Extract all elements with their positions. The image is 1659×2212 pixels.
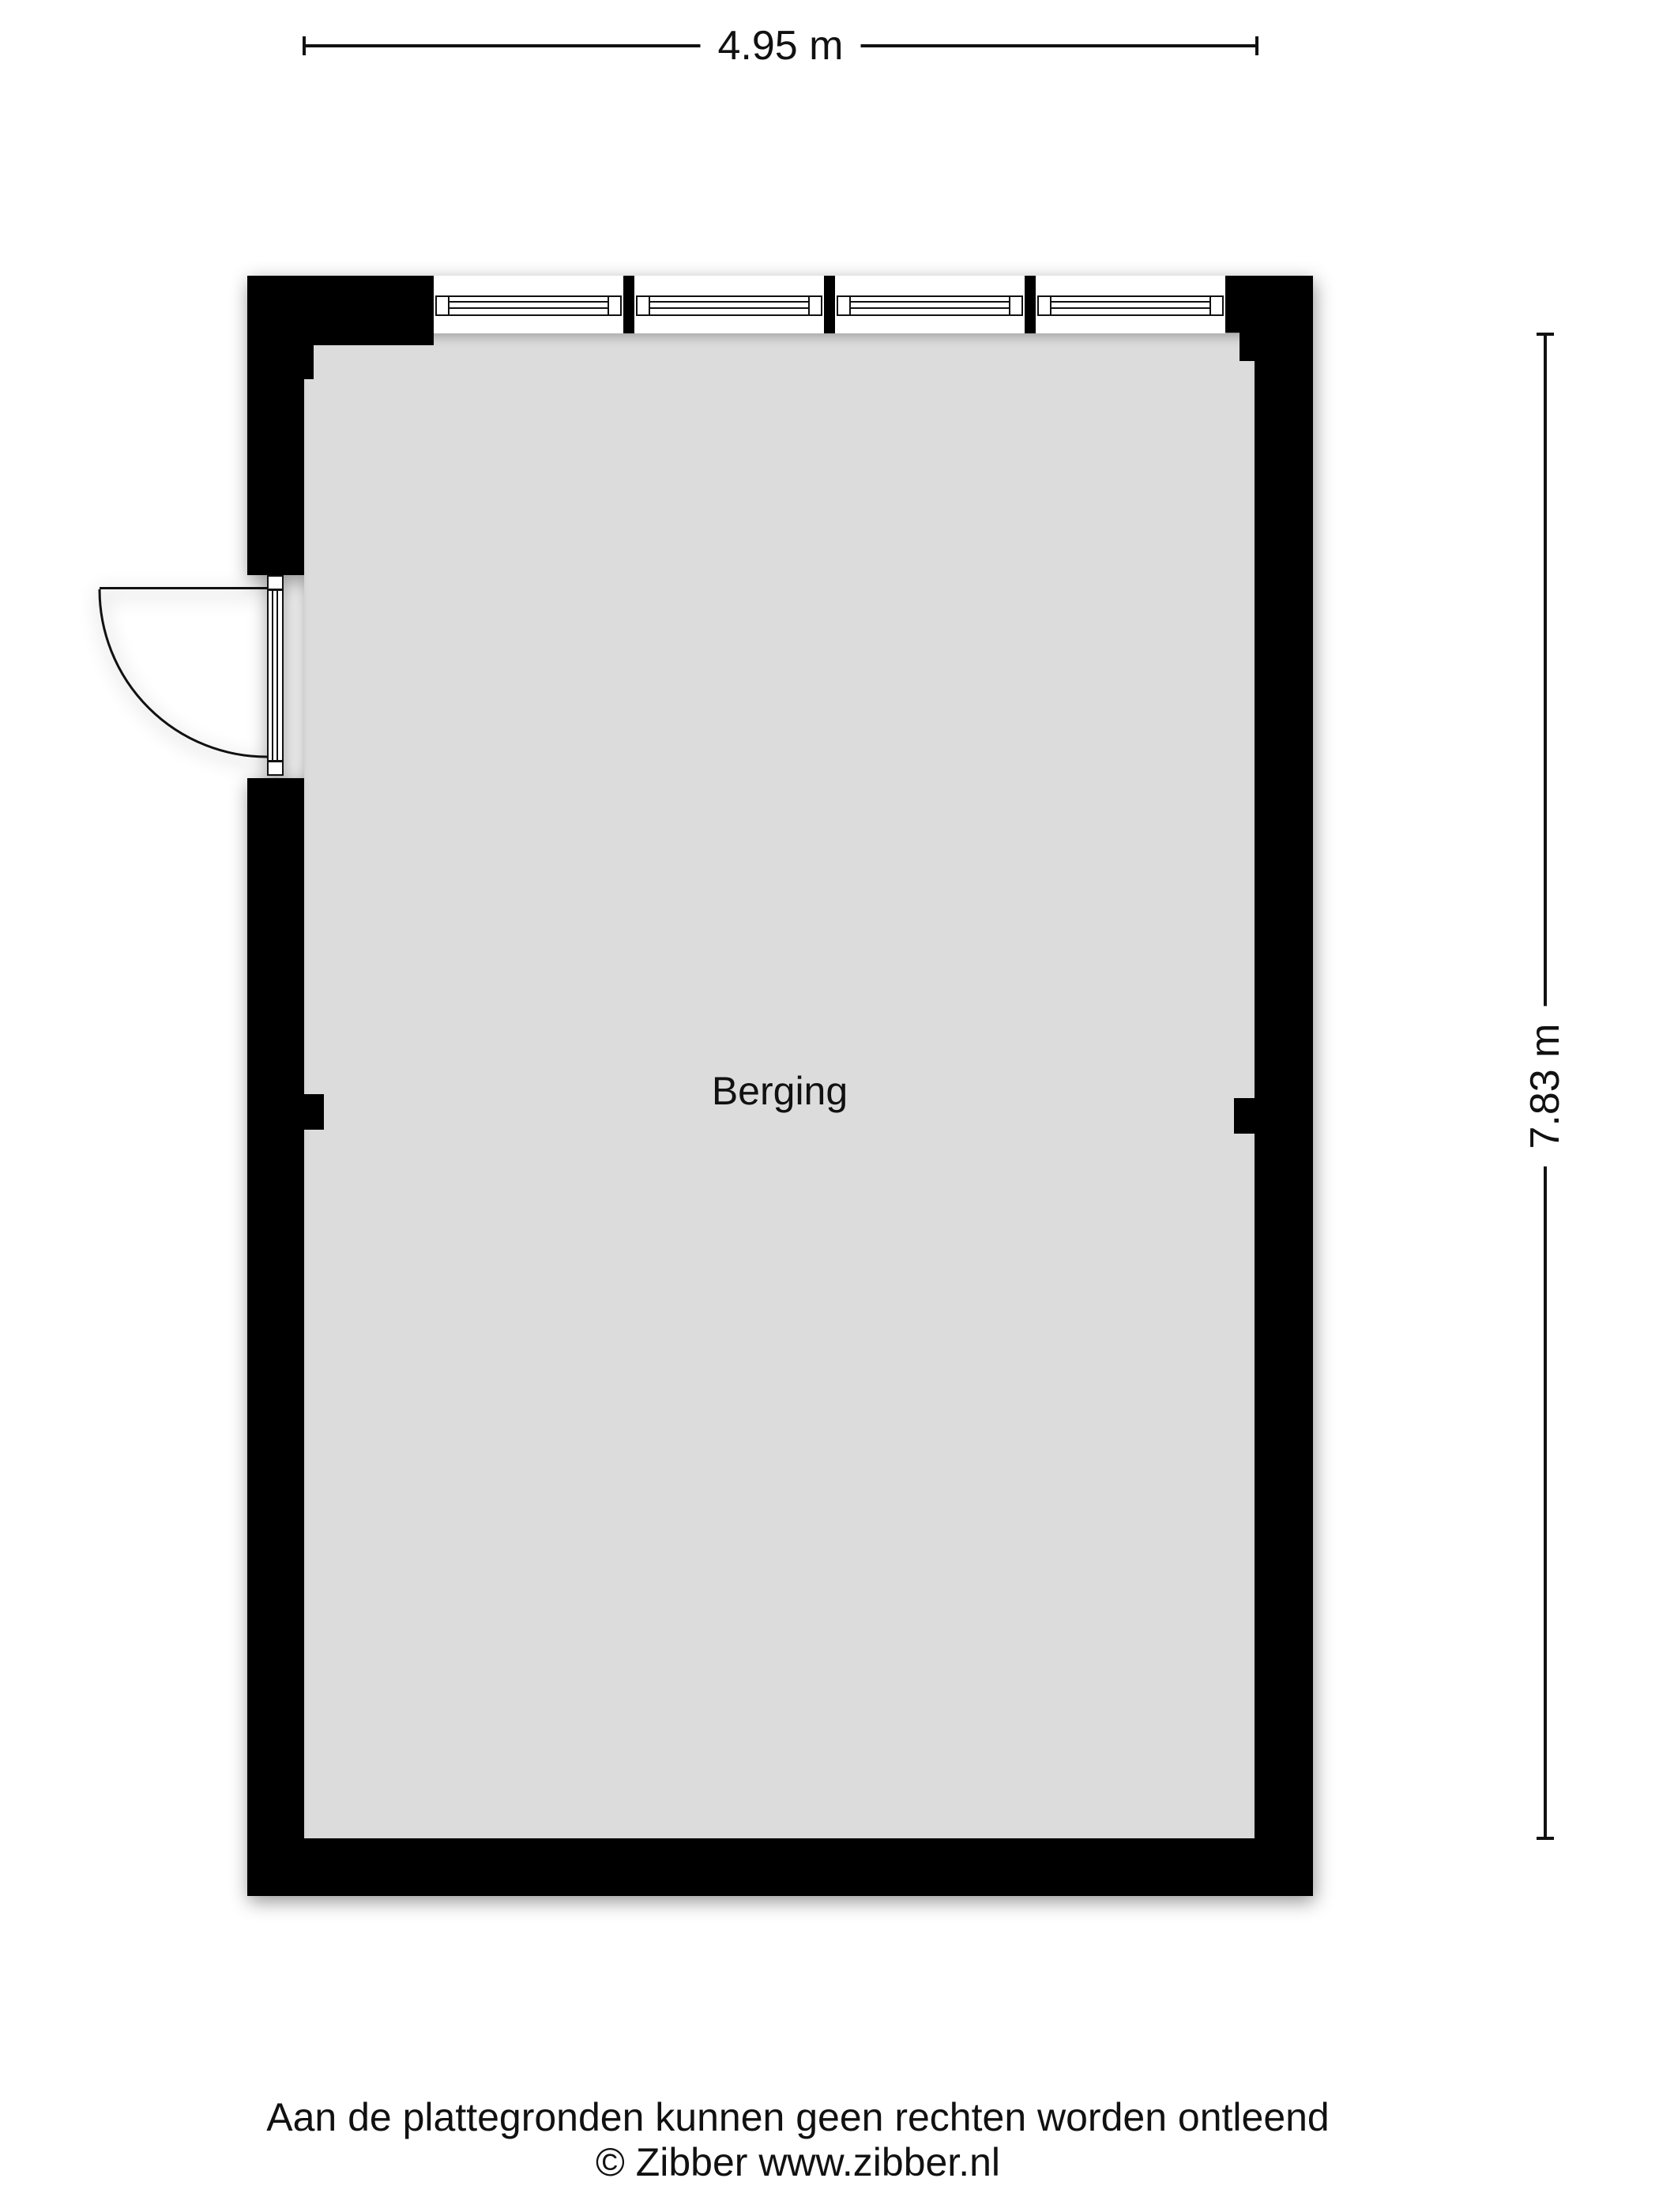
height-dimension-tick-bottom: [1537, 1837, 1554, 1840]
height-dimension-tick-top: [1537, 333, 1554, 336]
window-mullion: [623, 276, 634, 333]
room-label: Berging: [712, 1071, 848, 1111]
wall-notch-left: [304, 1094, 324, 1130]
wall-top-right-block: [1225, 276, 1313, 333]
height-dimension: 7.83 m: [1528, 333, 1563, 1840]
door-swing-arc: [100, 589, 267, 757]
wall-top-left-block: [247, 276, 434, 345]
floor-plan-page: 4.95 m: [0, 0, 1659, 2212]
window-glazing: [837, 295, 1023, 316]
window-mullion: [824, 276, 835, 333]
door-panel: [267, 575, 284, 776]
wall-right-step: [1240, 333, 1313, 361]
height-dimension-label: 7.83 m: [1525, 1006, 1566, 1167]
window-mullion: [1025, 276, 1036, 333]
footer-disclaimer: Aan de plattegronden kunnen geen rechten…: [0, 2095, 1596, 2140]
wall-notch-right: [1234, 1098, 1255, 1134]
window-glazing: [435, 295, 622, 316]
footer: Aan de plattegronden kunnen geen rechten…: [0, 2095, 1596, 2185]
window-glazing: [636, 295, 822, 316]
wall-left-upper: [247, 379, 304, 575]
window-band: [434, 276, 1225, 333]
wall-right: [1255, 361, 1313, 1896]
wall-left-step: [247, 345, 314, 379]
footer-copyright: © Zibber www.zibber.nl: [0, 2140, 1596, 2185]
wall-bottom: [247, 1838, 1313, 1896]
wall-left-lower: [247, 778, 304, 1896]
window-glazing: [1037, 295, 1224, 316]
